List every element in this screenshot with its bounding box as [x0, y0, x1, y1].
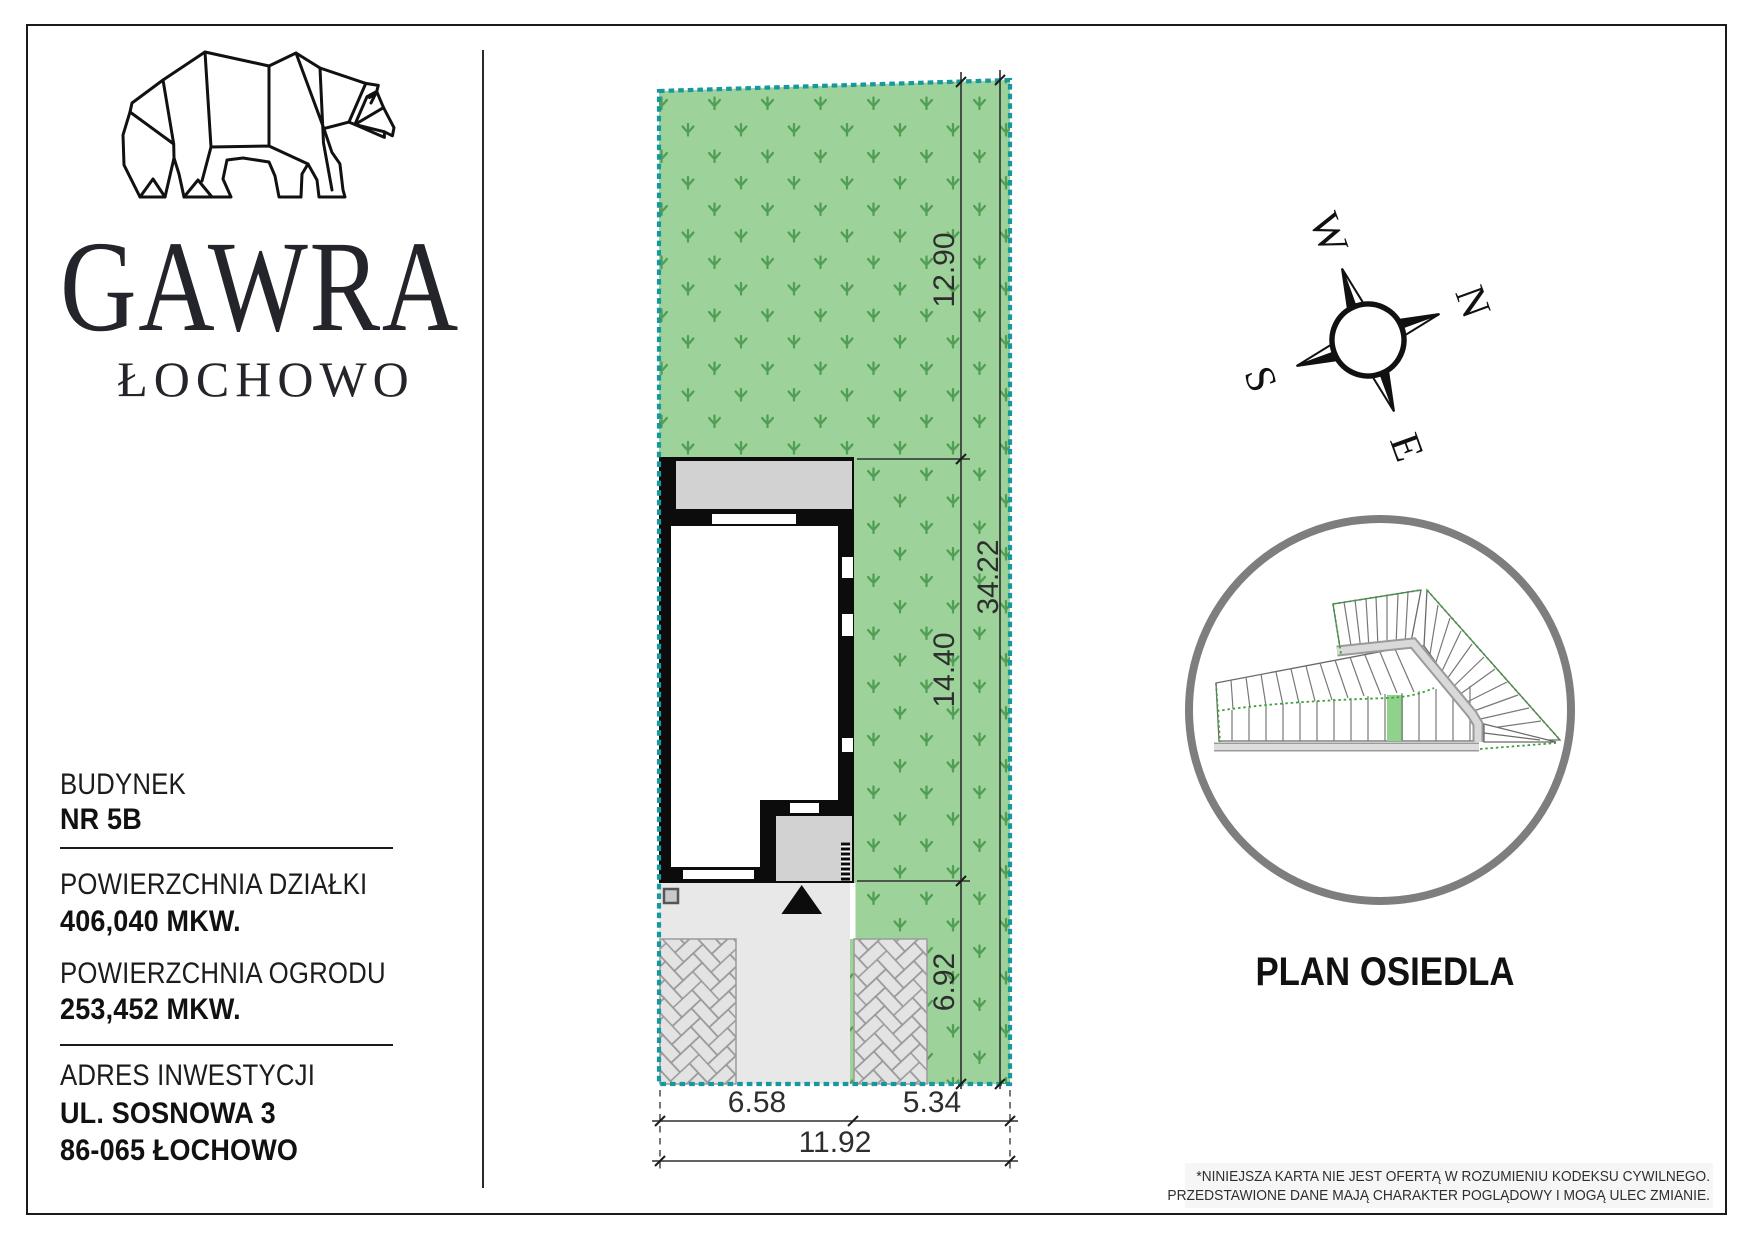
- svg-text:5.34: 5.34: [903, 1086, 961, 1119]
- svg-text:11.92: 11.92: [799, 1126, 872, 1159]
- svg-text:N: N: [1446, 280, 1500, 324]
- svg-text:W: W: [1300, 207, 1357, 260]
- svg-text:12.90: 12.90: [928, 232, 961, 307]
- svg-text:34.22: 34.22: [972, 539, 1005, 614]
- svg-text:E: E: [1380, 428, 1432, 468]
- svg-text:6.58: 6.58: [728, 1086, 786, 1119]
- svg-text:14.40: 14.40: [928, 632, 961, 707]
- svg-text:S: S: [1234, 360, 1285, 398]
- svg-text:6.92: 6.92: [928, 953, 961, 1011]
